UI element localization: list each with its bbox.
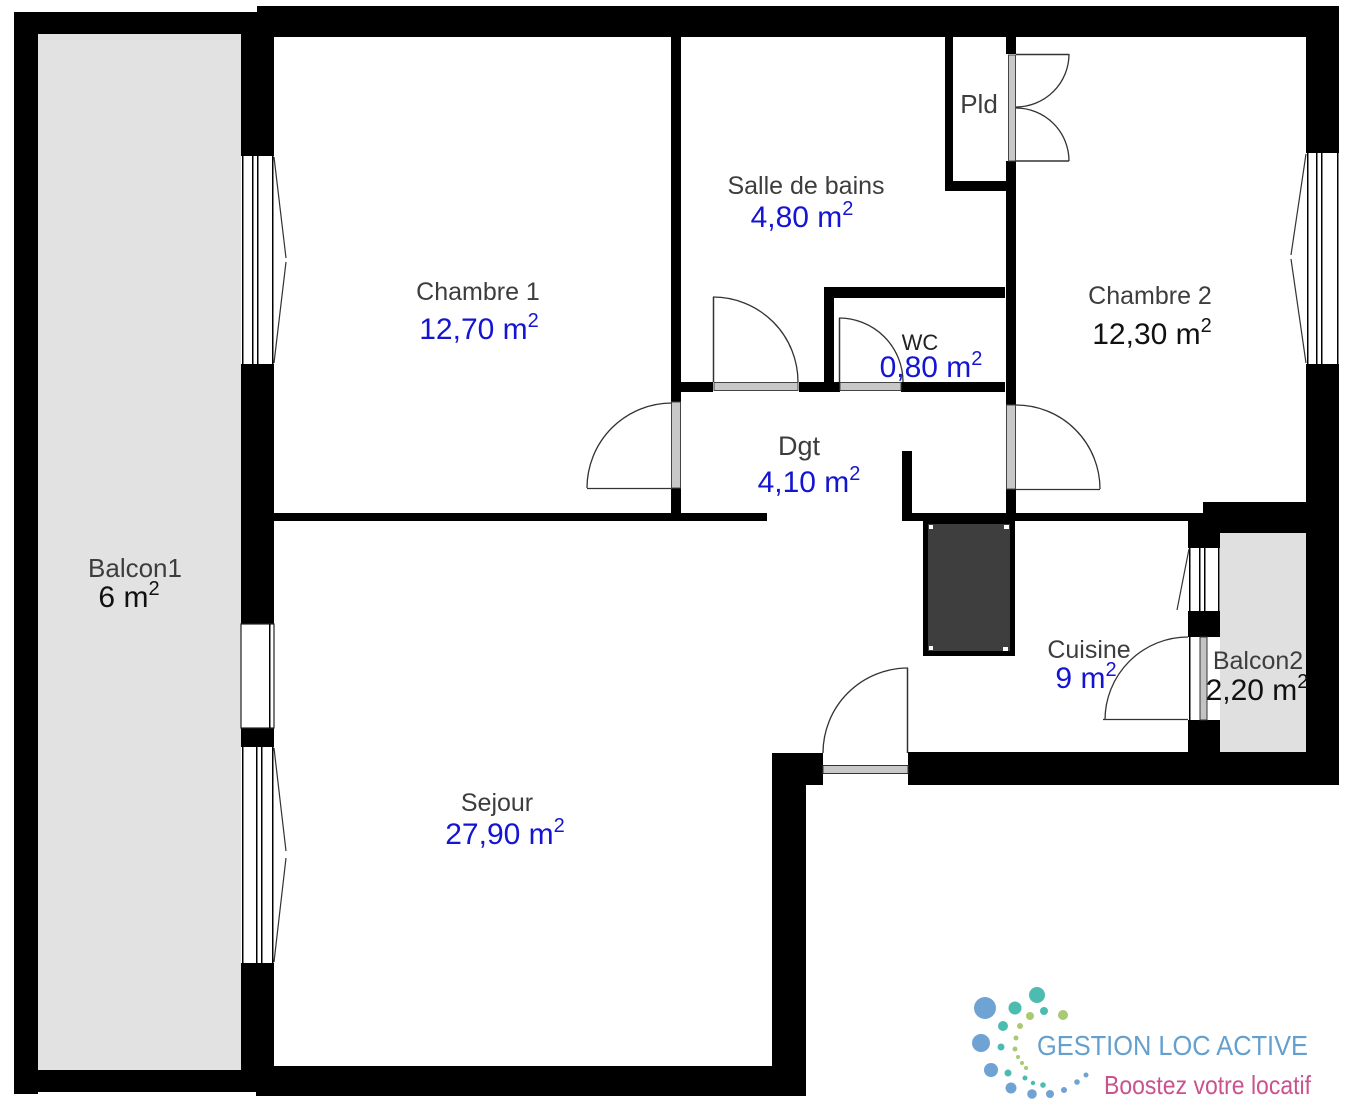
svg-text:12,30 m2: 12,30 m2 bbox=[1092, 315, 1212, 351]
svg-text:Dgt: Dgt bbox=[778, 431, 821, 461]
svg-text:Cuisine: Cuisine bbox=[1047, 636, 1130, 664]
svg-text:4,10 m2: 4,10 m2 bbox=[758, 463, 861, 499]
svg-text:GESTION LOC ACTIVE: GESTION LOC ACTIVE bbox=[1037, 1030, 1308, 1061]
svg-text:Sejour: Sejour bbox=[461, 789, 533, 817]
svg-text:Chambre 2: Chambre 2 bbox=[1088, 282, 1212, 310]
svg-text:Salle de bains: Salle de bains bbox=[727, 172, 884, 200]
svg-text:Pld: Pld bbox=[960, 89, 998, 119]
svg-text:12,70 m2: 12,70 m2 bbox=[419, 310, 539, 346]
svg-text:Balcon1: Balcon1 bbox=[88, 553, 182, 583]
svg-text:2,20 m2: 2,20 m2 bbox=[1206, 671, 1309, 707]
svg-text:0,80 m2: 0,80 m2 bbox=[880, 348, 983, 384]
svg-text:4,80 m2: 4,80 m2 bbox=[751, 198, 854, 234]
svg-text:27,90 m2: 27,90 m2 bbox=[445, 815, 565, 851]
svg-text:Chambre 1: Chambre 1 bbox=[416, 278, 540, 306]
svg-text:Boostez votre locatif: Boostez votre locatif bbox=[1104, 1070, 1312, 1100]
svg-text:Balcon2: Balcon2 bbox=[1213, 647, 1303, 675]
